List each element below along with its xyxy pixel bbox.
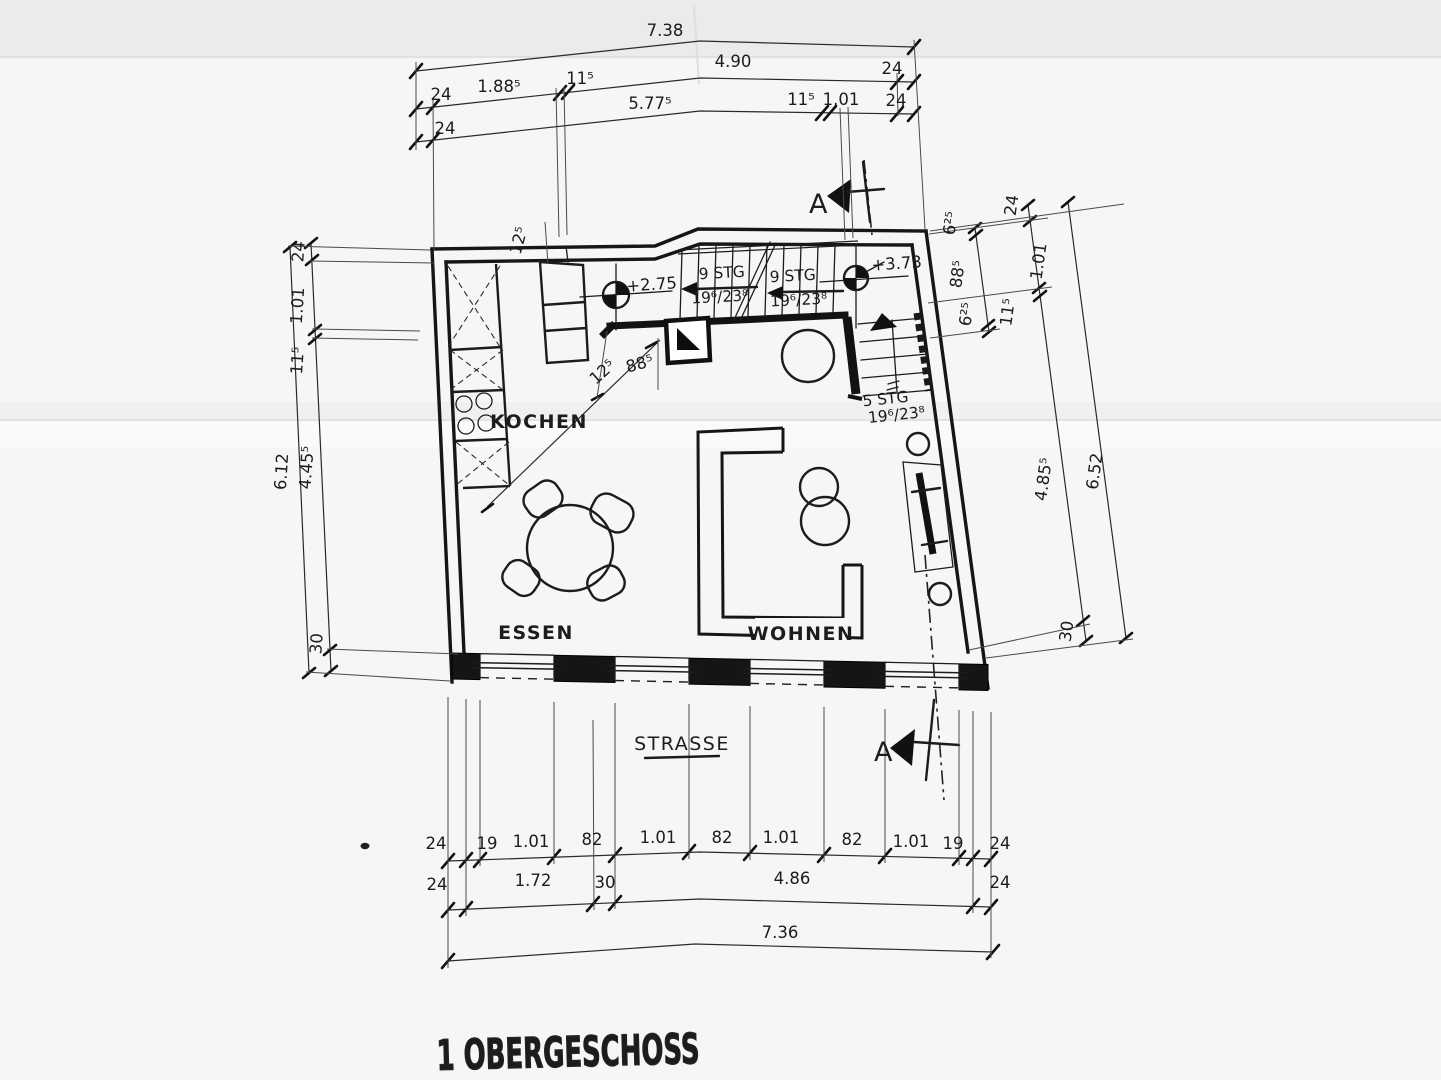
dim-right-0: 24 [1001, 194, 1023, 217]
dim-top-r2-4: 24 [882, 59, 903, 78]
counter-outline [450, 264, 510, 488]
dim-top-r2-3: 4.90 [715, 52, 752, 71]
dim-right-3: 4.85⁵ [1031, 456, 1056, 502]
dim-interior-diag-small: 12⁵ [586, 356, 619, 389]
dim-bot-r2-0: 24 [427, 875, 448, 894]
sofa [698, 428, 862, 638]
dim-bot-r1-9: 19 [943, 834, 964, 853]
dim-top-r3-3: 1.01 [823, 90, 860, 109]
stair-left-riserun: 19⁶/23⁸ [691, 287, 749, 308]
dim-top-r3-2: 11⁵ [787, 90, 815, 109]
dim-bot-r2-3: 4.86 [774, 869, 811, 888]
dim-left-2: 11⁵ [287, 346, 308, 375]
dim-top-total: 7.38 [647, 21, 684, 40]
stair-left-steps: 9 STG [698, 263, 745, 283]
section-arrow-bottom [890, 729, 915, 766]
dim-top-r3-1: 5.77⁵ [628, 94, 671, 113]
dim-interior-diag-opening: 88⁵ [624, 351, 656, 377]
stair-right-riserun: 19⁶/23⁸ [770, 290, 828, 311]
kitchen-fittings [448, 246, 588, 488]
section-arrow-top [827, 179, 851, 213]
dim-right-2: 11⁵ [996, 297, 1019, 327]
dim-right-total: 6.52 [1083, 452, 1107, 491]
tall-cabinet [540, 262, 588, 363]
dim-left-0: 24 [288, 240, 308, 262]
stool-lower [929, 583, 951, 605]
dim-bot-r2-2: 30 [595, 873, 616, 892]
dim-bot-r1-4: 1.01 [640, 828, 677, 847]
labels: 7.38 24 1.88⁵ 11⁵ 4.90 24 24 5.77⁵ 11⁵ 1… [271, 21, 1107, 1080]
dim-bot-r1-3: 82 [582, 830, 603, 849]
dim-right-1: 1.01 [1027, 242, 1051, 281]
dim-top-r3-4: 24 [886, 91, 907, 110]
landing-wall-tip [604, 326, 612, 334]
dim-top-r3-0: 24 [435, 119, 456, 138]
dim-bot-r2-1: 1.72 [515, 871, 552, 890]
side-table-1 [800, 468, 838, 506]
level-top-value: +3.73 [871, 252, 923, 274]
stair-side-wall-cap [848, 396, 862, 399]
dim-top-r2-0: 24 [431, 85, 452, 104]
dim-left-4: 30 [306, 632, 326, 654]
dim-lines-bottom [448, 852, 993, 961]
room-label-kitchen: KOCHEN [490, 411, 588, 433]
ink-fleck [361, 843, 370, 849]
dim-left-3: 4.45⁵ [296, 445, 318, 490]
chair-3 [498, 555, 545, 600]
room-label-dining: ESSEN [498, 622, 574, 644]
chair-4 [583, 561, 629, 604]
sheet-title: 1 OBERGESCHOSS [436, 1024, 700, 1080]
room-label-living: WOHNEN [748, 623, 855, 645]
dim-bot-r1-2: 1.01 [513, 832, 550, 851]
floor-plan-sheet: 7.38 24 1.88⁵ 11⁵ 4.90 24 24 5.77⁵ 11⁵ 1… [0, 0, 1441, 1080]
dim-right-win-0: 6²⁵ [939, 210, 961, 236]
dim-bot-total: 7.36 [762, 923, 799, 942]
dim-right-4: 30 [1056, 620, 1078, 643]
stair-right-steps: 9 STG [769, 266, 816, 286]
section-mark-bottom [890, 700, 959, 780]
dim-right-win-1: 88⁵ [946, 259, 969, 289]
stair-side-wall [847, 317, 856, 394]
cabinet-x-marks [448, 266, 509, 485]
dim-right-win-2: 6²⁵ [955, 301, 977, 327]
dim-left-total: 6.12 [271, 453, 293, 491]
dim-bot-r2-4: 24 [990, 873, 1011, 892]
dim-bot-r1-0: 24 [426, 834, 447, 853]
section-letter-bottom: A [874, 737, 893, 768]
section-mark-top [827, 162, 884, 222]
dim-bot-r1-8: 1.01 [893, 832, 930, 851]
stair-treads-left [680, 244, 767, 320]
dim-top-r2-2: 11⁵ [566, 69, 594, 88]
dining-furniture [498, 476, 638, 605]
dim-bot-r1-10: 24 [990, 834, 1011, 853]
round-table [782, 330, 834, 382]
dim-top-r2-1: 1.88⁵ [477, 77, 520, 96]
dimension-lines [284, 40, 1133, 968]
dim-bot-r1-6: 1.01 [763, 828, 800, 847]
living-furniture [698, 428, 953, 638]
dim-bot-r1-5: 82 [712, 828, 733, 847]
dim-left-1: 1.01 [287, 287, 309, 325]
dim-ext-top [416, 40, 925, 250]
level-mid-value: +2.75 [626, 273, 678, 295]
dim-bot-r1-1: 19 [477, 834, 498, 853]
landing-wall [610, 315, 845, 326]
street-underline [645, 756, 719, 758]
section-letter-top: A [809, 189, 828, 220]
dim-interior-wall: 12⁵ [506, 225, 532, 257]
dim-bot-r1-7: 82 [842, 830, 863, 849]
bench-bar [919, 473, 933, 554]
paper-creases [0, 0, 1441, 849]
street-label: STRASSE [634, 733, 730, 755]
